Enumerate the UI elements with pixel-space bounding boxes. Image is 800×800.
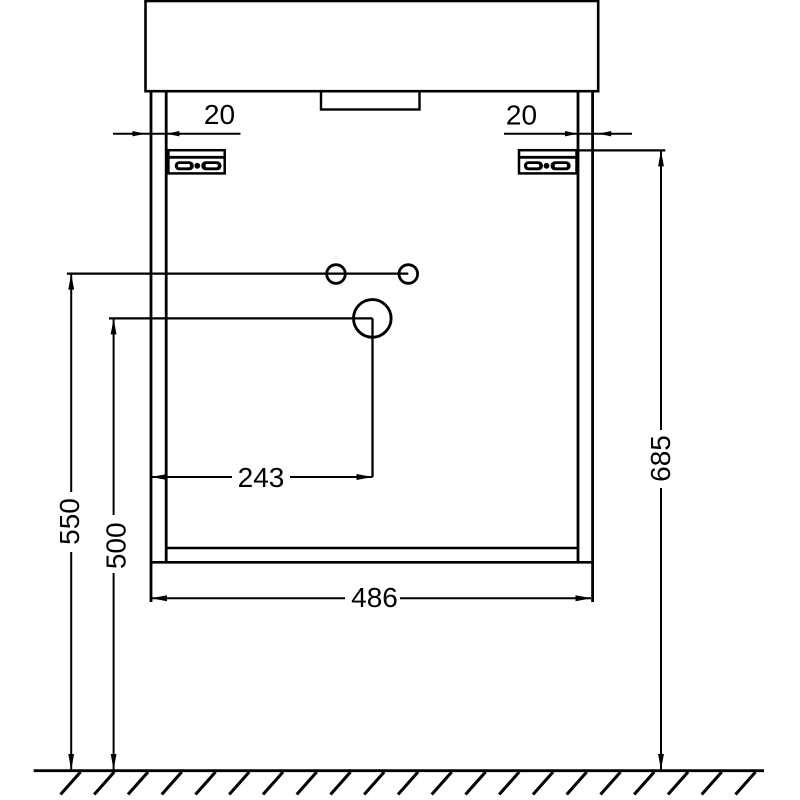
svg-text:685: 685 (645, 435, 676, 482)
svg-text:20: 20 (506, 100, 537, 131)
svg-text:486: 486 (351, 582, 398, 613)
svg-text:243: 243 (238, 462, 285, 493)
svg-text:20: 20 (204, 99, 235, 130)
svg-text:550: 550 (54, 498, 85, 545)
svg-text:500: 500 (100, 522, 131, 569)
